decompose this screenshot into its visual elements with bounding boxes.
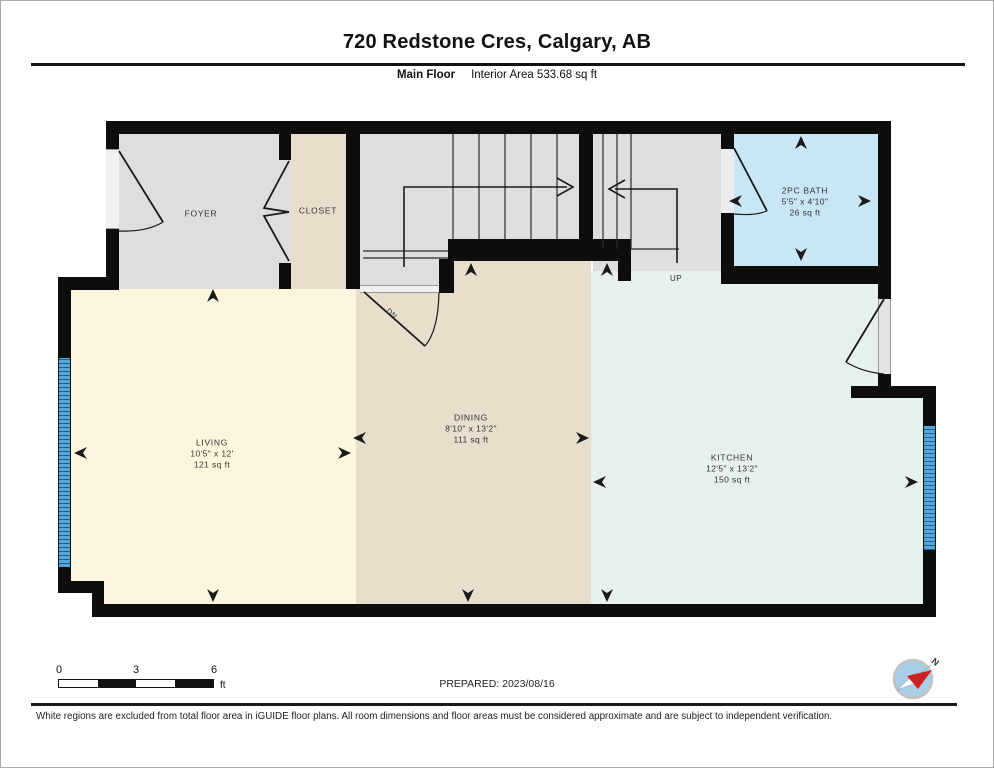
basement-door-threshold bbox=[360, 285, 439, 293]
bath-door-opening bbox=[721, 149, 734, 213]
wall-segment bbox=[279, 134, 291, 160]
room-foyer-doorway bbox=[279, 160, 291, 263]
room-kitchen-extension bbox=[878, 398, 923, 604]
excluded-notch bbox=[58, 593, 92, 617]
wall-segment bbox=[106, 121, 891, 134]
kitchen-label: KITCHEN 12'5" x 13'2" 150 sq ft bbox=[706, 452, 758, 485]
dining-label: DINING 8'10" x 13'2" 111 sq ft bbox=[445, 412, 497, 445]
stairs-up-label: UP bbox=[670, 274, 682, 283]
wall-segment bbox=[721, 266, 891, 284]
floorplan-page: 720 Redstone Cres, Calgary, AB Main Floo… bbox=[0, 0, 994, 768]
wall-segment bbox=[618, 261, 631, 281]
wall-segment bbox=[851, 386, 936, 398]
stair-landing bbox=[360, 239, 448, 289]
footer-divider bbox=[31, 703, 957, 706]
wall-segment bbox=[279, 263, 291, 289]
wall-segment bbox=[579, 121, 593, 246]
wall-segment bbox=[878, 374, 891, 398]
wall-segment bbox=[448, 239, 631, 261]
living-window bbox=[58, 357, 71, 569]
header-divider bbox=[31, 63, 965, 66]
room-kitchen bbox=[591, 271, 878, 604]
wall-segment bbox=[58, 277, 71, 359]
wall-segment bbox=[721, 121, 734, 149]
prepared-date-label: PREPARED: 2023/08/16 bbox=[1, 678, 993, 690]
wall-segment bbox=[92, 604, 936, 617]
entry-door-opening bbox=[106, 149, 119, 229]
scale-tick-6: 6 bbox=[211, 664, 217, 676]
back-door-opening bbox=[878, 299, 891, 374]
closet-label: CLOSET bbox=[299, 205, 337, 216]
scale-tick-0: 0 bbox=[56, 664, 62, 676]
bath-label: 2PC BATH 5'5" x 4'10" 26 sq ft bbox=[782, 185, 829, 218]
stairwell-down bbox=[360, 134, 579, 239]
footer-disclaimer: White regions are excluded from total fl… bbox=[36, 711, 966, 722]
kitchen-window bbox=[923, 425, 936, 551]
floor-label: Main Floor bbox=[397, 69, 455, 81]
compass-north-label: N bbox=[930, 656, 942, 668]
interior-area-label: Interior Area 533.68 sq ft bbox=[471, 69, 597, 81]
wall-segment bbox=[106, 121, 119, 149]
foyer-label: FOYER bbox=[185, 208, 218, 219]
floor-subtitle: Main FloorInterior Area 533.68 sq ft bbox=[1, 69, 993, 81]
wall-segment bbox=[878, 121, 891, 279]
wall-segment bbox=[346, 121, 360, 289]
wall-segment bbox=[439, 259, 454, 293]
scale-tick-3: 3 bbox=[133, 664, 139, 676]
wall-segment bbox=[721, 213, 734, 266]
page-title: 720 Redstone Cres, Calgary, AB bbox=[1, 31, 993, 54]
living-label: LIVING 10'5" x 12' 121 sq ft bbox=[190, 437, 233, 470]
